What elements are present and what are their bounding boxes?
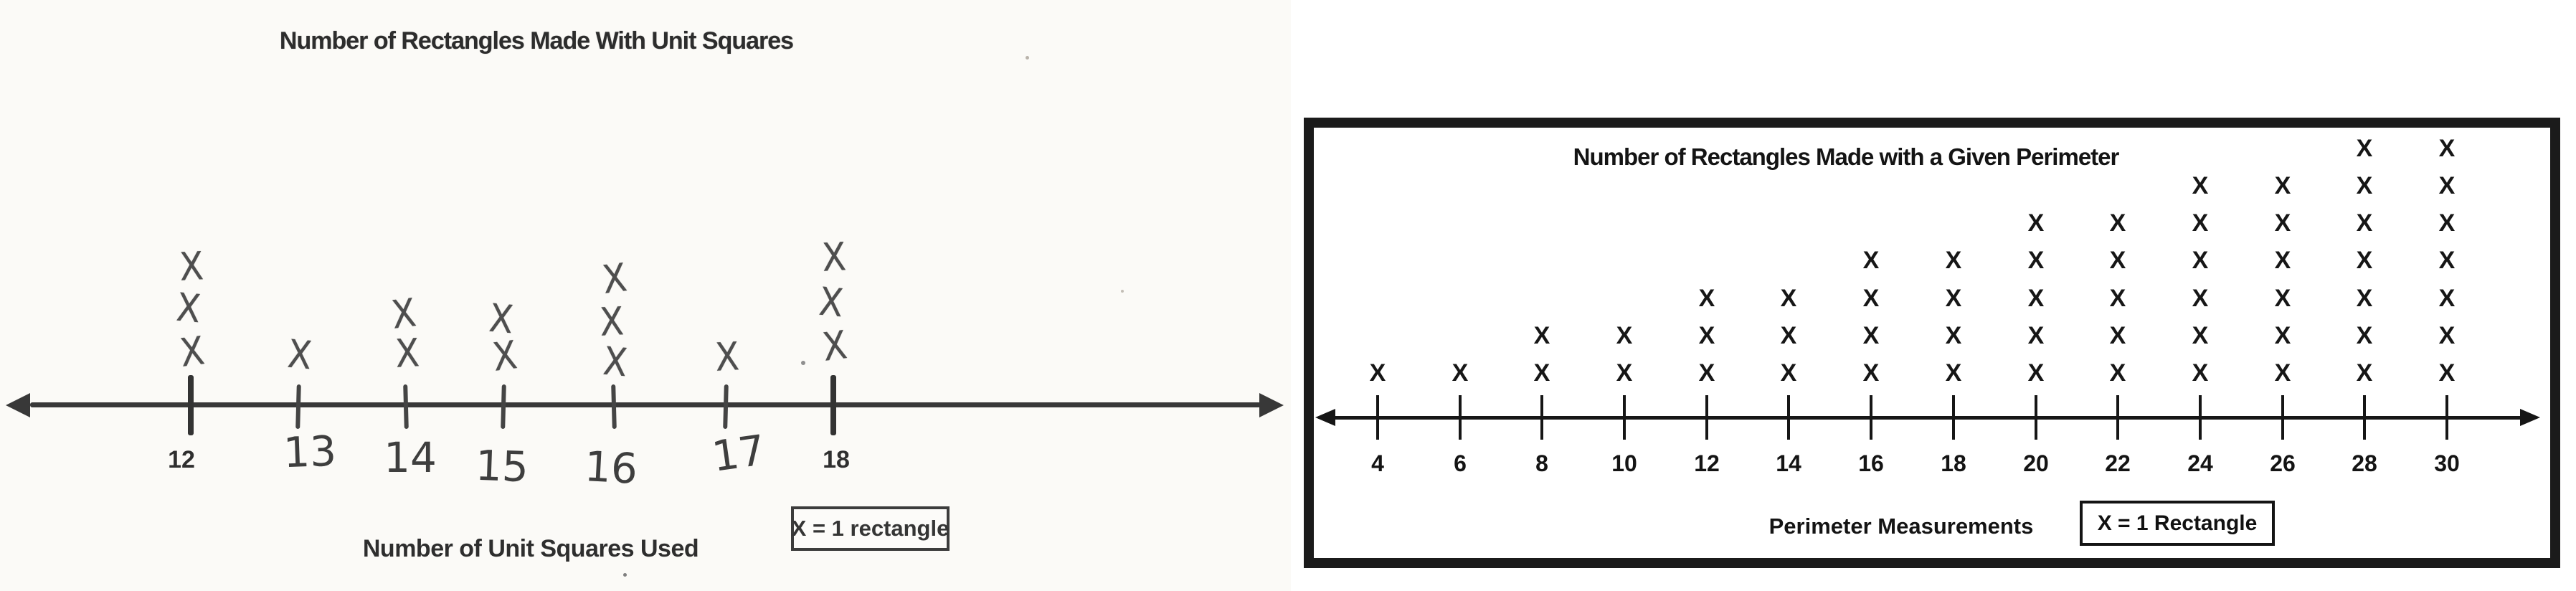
- scan-speck: [1121, 290, 1124, 293]
- x-mark: X: [1776, 361, 1801, 385]
- x-mark: X: [2352, 136, 2377, 161]
- tick-mark: [2445, 395, 2448, 440]
- x-mark: X: [1695, 361, 1719, 385]
- x-mark: X: [2024, 361, 2048, 385]
- tick-mark: [1952, 395, 1955, 440]
- x-mark: X: [2270, 211, 2295, 235]
- x-mark: X: [2435, 211, 2459, 235]
- tick-mark: [188, 375, 194, 435]
- x-mark: X: [2352, 361, 2377, 385]
- x-mark: X: [2188, 211, 2212, 235]
- x-mark: X: [2352, 323, 2377, 348]
- x-mark: X: [2188, 174, 2212, 198]
- x-mark: X: [2352, 211, 2377, 235]
- tick-mark: [1623, 395, 1626, 440]
- tick-label: 14: [384, 433, 437, 482]
- tick-mark: [1705, 395, 1708, 440]
- right-legend-box: X = 1 Rectangle: [2080, 501, 2275, 546]
- tick-label: 20: [2023, 450, 2049, 477]
- x-mark: X: [2270, 286, 2295, 311]
- tick-mark: [2281, 395, 2284, 440]
- scan-speck: [801, 361, 805, 365]
- tick-mark: [2199, 395, 2202, 440]
- left-legend-box: X = 1 rectangle: [791, 506, 950, 551]
- x-mark: X: [2270, 248, 2295, 273]
- x-mark: X: [2106, 286, 2130, 311]
- tick-mark: [2363, 395, 2366, 440]
- x-mark: X: [2024, 323, 2048, 348]
- tick-mark: [2035, 395, 2037, 440]
- tick-mark: [611, 384, 617, 429]
- x-mark: X: [1695, 286, 1719, 311]
- x-mark: X: [2352, 286, 2377, 311]
- x-mark: X: [2435, 136, 2459, 161]
- tick-mark: [1787, 395, 1790, 440]
- x-mark: X: [481, 297, 521, 340]
- left-legend-text: X = 1 rectangle: [792, 516, 950, 542]
- x-mark: X: [2435, 323, 2459, 348]
- left-axis-east-arrow-icon: [1259, 393, 1284, 417]
- x-mark: X: [2352, 174, 2377, 198]
- tick-mark: [501, 384, 506, 429]
- x-mark: X: [2188, 323, 2212, 348]
- left-axis-west-arrow-icon: [6, 393, 30, 417]
- x-mark: X: [1530, 323, 1554, 348]
- tick-mark: [295, 384, 301, 429]
- x-mark: X: [1695, 323, 1719, 348]
- worksheet-canvas: Number of Rectangles Made With Unit Squa…: [0, 0, 2576, 591]
- tick-label: 14: [1776, 450, 1801, 477]
- x-mark: X: [1776, 323, 1801, 348]
- x-mark: X: [1365, 361, 1390, 385]
- tick-label: 16: [1858, 450, 1884, 477]
- tick-mark: [2116, 395, 2119, 440]
- right-axis-label: Perimeter Measurements: [1769, 514, 2034, 539]
- x-mark: X: [708, 336, 746, 378]
- x-mark: X: [2435, 361, 2459, 385]
- x-mark: X: [2188, 248, 2212, 273]
- x-mark: X: [388, 332, 426, 374]
- right-number-line: [1332, 416, 2521, 420]
- tick-label: 13: [283, 427, 337, 478]
- x-mark: X: [280, 333, 319, 376]
- x-mark: X: [811, 280, 851, 323]
- x-mark: X: [1941, 323, 1966, 348]
- tick-mark: [1870, 395, 1872, 440]
- x-mark: X: [1448, 361, 1472, 385]
- tick-label: 30: [2434, 450, 2460, 477]
- tick-label: 12: [1694, 450, 1720, 477]
- x-mark: X: [2435, 174, 2459, 198]
- tick-label: 28: [2352, 450, 2377, 477]
- x-mark: X: [1612, 323, 1637, 348]
- x-mark: X: [2106, 248, 2130, 273]
- right-plot-title: Number of Rectangles Made with a Given P…: [1573, 143, 2119, 171]
- tick-label: 10: [1611, 450, 1637, 477]
- x-mark: X: [2024, 211, 2048, 235]
- tick-label: 15: [475, 441, 529, 492]
- tick-mark: [1459, 395, 1462, 440]
- x-mark: X: [1859, 248, 1883, 273]
- x-mark: X: [169, 286, 208, 329]
- x-mark: X: [384, 291, 425, 336]
- x-mark: X: [595, 256, 635, 301]
- x-mark: X: [1941, 361, 1966, 385]
- tick-mark: [1540, 395, 1543, 440]
- x-mark: X: [1941, 286, 1966, 311]
- x-mark: X: [1776, 286, 1801, 311]
- scan-speck: [1026, 56, 1029, 60]
- tick-label: 6: [1454, 450, 1467, 477]
- tick-mark: [830, 375, 836, 435]
- tick-label: 22: [2105, 450, 2131, 477]
- x-mark: X: [2188, 361, 2212, 385]
- right-legend-text: X = 1 Rectangle: [2098, 511, 2258, 536]
- x-mark: X: [1859, 323, 1883, 348]
- x-mark: X: [1859, 361, 1883, 385]
- x-mark: X: [2270, 174, 2295, 198]
- x-mark: X: [1612, 361, 1637, 385]
- x-mark: X: [592, 301, 630, 343]
- x-mark: X: [2270, 323, 2295, 348]
- scan-speck: [623, 573, 627, 577]
- tick-label: 24: [2187, 450, 2213, 477]
- x-mark: X: [172, 245, 210, 288]
- x-mark: X: [1530, 361, 1554, 385]
- x-mark: X: [2106, 361, 2130, 385]
- tick-label: 18: [823, 446, 850, 474]
- tick-label: 17: [709, 425, 769, 481]
- x-mark: X: [2024, 286, 2048, 311]
- tick-label: 16: [583, 442, 638, 493]
- tick-label: 8: [1535, 450, 1548, 477]
- x-mark: X: [1941, 248, 1966, 273]
- x-mark: X: [2024, 248, 2048, 273]
- x-mark: X: [172, 329, 213, 374]
- tick-label: 18: [1941, 450, 1966, 477]
- x-mark: X: [2435, 286, 2459, 311]
- x-mark: X: [815, 323, 856, 368]
- left-plot-title: Number of Rectangles Made With Unit Squa…: [280, 27, 793, 55]
- tick-mark: [403, 384, 409, 429]
- tick-mark: [1376, 395, 1379, 440]
- right-axis-west-arrow-icon: [1315, 409, 1335, 426]
- x-mark: X: [2106, 323, 2130, 348]
- tick-mark: [723, 384, 729, 429]
- unit-squares-plot: Number of Rectangles Made With Unit Squa…: [0, 0, 1291, 591]
- x-mark: X: [595, 340, 635, 383]
- left-axis-label: Number of Unit Squares Used: [363, 535, 699, 563]
- x-mark: X: [1859, 286, 1883, 311]
- x-mark: X: [2106, 211, 2130, 235]
- tick-label: 26: [2270, 450, 2296, 477]
- tick-label: 4: [1371, 450, 1384, 477]
- x-mark: X: [2270, 361, 2295, 385]
- x-mark: X: [2352, 248, 2377, 273]
- left-number-line: [30, 402, 1261, 407]
- right-axis-east-arrow-icon: [2520, 409, 2540, 426]
- tick-label: 12: [168, 446, 195, 474]
- x-mark: X: [2188, 286, 2212, 311]
- x-mark: X: [2435, 248, 2459, 273]
- x-mark: X: [815, 236, 853, 278]
